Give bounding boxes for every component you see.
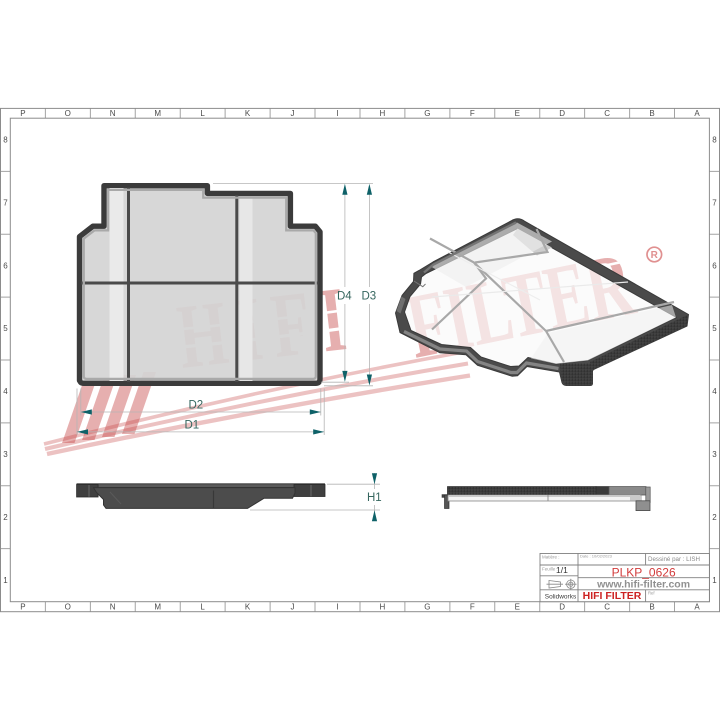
svg-text:Ref: Ref [648,591,655,596]
svg-text:7: 7 [712,198,717,207]
svg-text:Dessiné par : LISH: Dessiné par : LISH [648,556,700,563]
svg-text:H: H [380,603,386,612]
svg-text:O: O [65,109,71,118]
svg-text:E: E [515,603,520,612]
svg-text:2: 2 [712,513,717,522]
svg-text:PLKP_0626: PLKP_0626 [612,565,676,579]
svg-text:7: 7 [3,198,8,207]
svg-text:N: N [110,109,116,118]
svg-text:P: P [20,109,25,118]
svg-text:N: N [110,603,116,612]
svg-text:2: 2 [3,513,8,522]
svg-text:6: 6 [3,261,8,270]
svg-text:J: J [291,109,295,118]
svg-text:5: 5 [712,324,717,333]
svg-text:G: G [424,603,430,612]
svg-text:F: F [470,603,475,612]
svg-text:A: A [694,109,700,118]
svg-text:H: H [380,109,386,118]
svg-text:F: F [470,109,475,118]
svg-text:R: R [651,250,659,261]
svg-text:Date : 10/02/2023: Date : 10/02/2023 [580,554,613,559]
svg-text:D2: D2 [189,400,204,412]
svg-text:4: 4 [712,387,717,396]
svg-text:www.hifi-filter.com: www.hifi-filter.com [596,579,690,591]
svg-text:B: B [649,603,654,612]
svg-text:8: 8 [3,136,8,145]
svg-text:D: D [559,109,565,118]
svg-text:I: I [336,109,338,118]
svg-text:O: O [65,603,71,612]
svg-text:HIFI FILTER: HIFI FILTER [583,590,642,602]
svg-text:8: 8 [712,136,717,145]
svg-text:L: L [200,603,205,612]
svg-text:G: G [424,109,430,118]
svg-text:A: A [694,603,700,612]
svg-text:D: D [559,603,565,612]
svg-text:J: J [291,603,295,612]
svg-text:D1: D1 [185,419,200,431]
svg-text:1: 1 [712,576,717,585]
svg-text:5: 5 [3,324,8,333]
svg-text:C: C [604,603,610,612]
svg-text:3: 3 [3,450,8,459]
svg-text:M: M [154,603,161,612]
svg-text:1/1: 1/1 [556,565,568,575]
svg-text:3: 3 [712,450,717,459]
svg-text:4: 4 [3,387,8,396]
svg-text:Matière :: Matière : [542,555,560,560]
svg-text:6: 6 [712,261,717,270]
svg-text:L: L [200,109,205,118]
svg-text:H1: H1 [367,492,382,504]
svg-text:C: C [604,109,610,118]
svg-text:1: 1 [3,576,8,585]
svg-text:P: P [20,603,25,612]
svg-text:D3: D3 [362,291,377,303]
svg-text:Solidworks: Solidworks [545,593,577,600]
svg-text:K: K [245,603,251,612]
svg-text:E: E [515,109,520,118]
svg-text:B: B [649,109,654,118]
svg-text:K: K [245,109,251,118]
svg-text:D4: D4 [337,291,352,303]
svg-text:I: I [336,603,338,612]
svg-text:M: M [154,109,161,118]
